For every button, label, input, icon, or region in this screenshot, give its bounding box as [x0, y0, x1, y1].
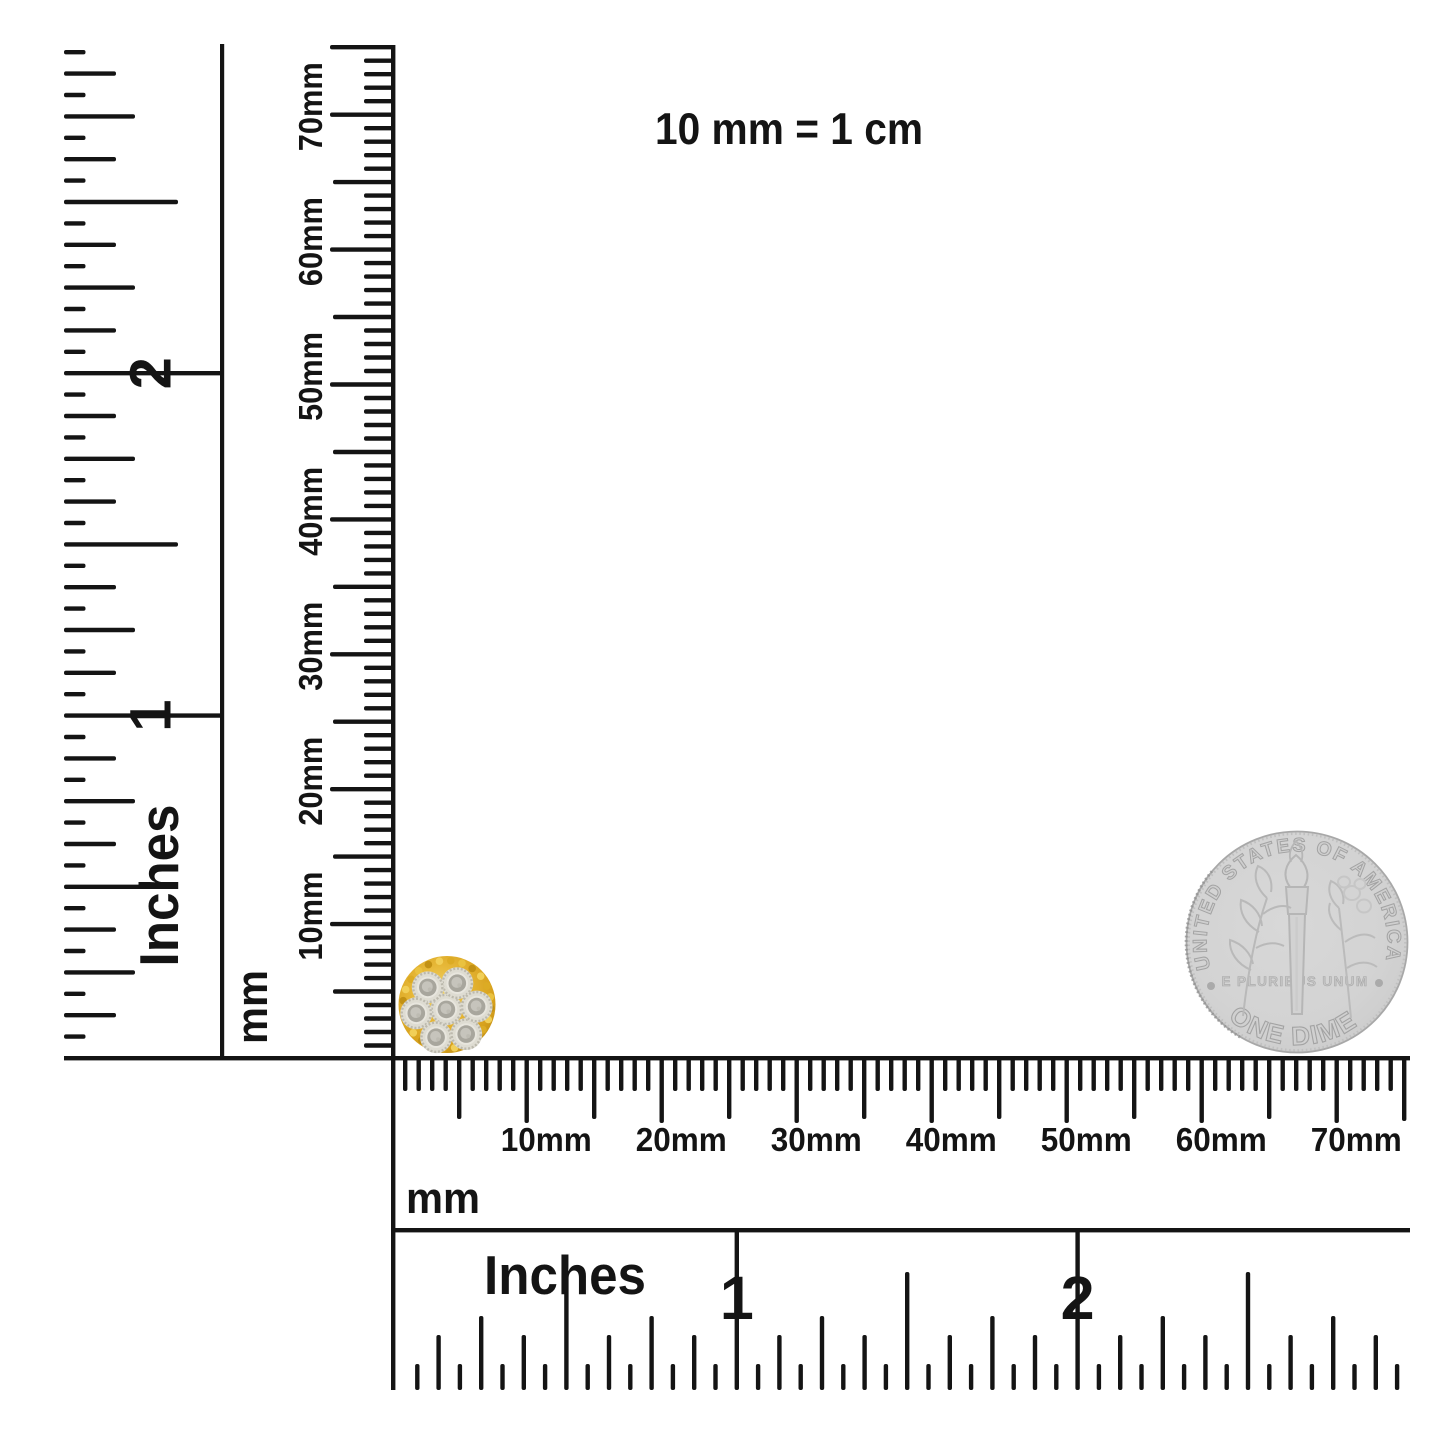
svg-text:70mm: 70mm	[1311, 1121, 1402, 1158]
svg-text:1: 1	[720, 1264, 754, 1332]
svg-text:70mm: 70mm	[292, 62, 329, 151]
svg-text:20mm: 20mm	[636, 1121, 727, 1158]
svg-text:20mm: 20mm	[292, 737, 329, 826]
svg-text:10 mm = 1 cm: 10 mm = 1 cm	[655, 105, 923, 154]
svg-text:50mm: 50mm	[1041, 1121, 1132, 1158]
svg-text:40mm: 40mm	[906, 1121, 997, 1158]
svg-text:Inches: Inches	[484, 1244, 646, 1306]
svg-text:60mm: 60mm	[1176, 1121, 1267, 1158]
svg-text:2: 2	[119, 357, 184, 389]
svg-text:30mm: 30mm	[292, 602, 329, 691]
svg-text:50mm: 50mm	[292, 332, 329, 421]
svg-text:60mm: 60mm	[292, 197, 329, 286]
svg-text:40mm: 40mm	[292, 467, 329, 556]
svg-text:mm: mm	[228, 970, 277, 1044]
svg-text:Inches: Inches	[128, 805, 190, 967]
svg-text:mm: mm	[406, 1174, 480, 1223]
svg-text:10mm: 10mm	[501, 1121, 592, 1158]
svg-text:2: 2	[1061, 1264, 1095, 1332]
svg-text:30mm: 30mm	[771, 1121, 862, 1158]
svg-text:10mm: 10mm	[292, 872, 329, 961]
svg-text:1: 1	[119, 699, 184, 731]
